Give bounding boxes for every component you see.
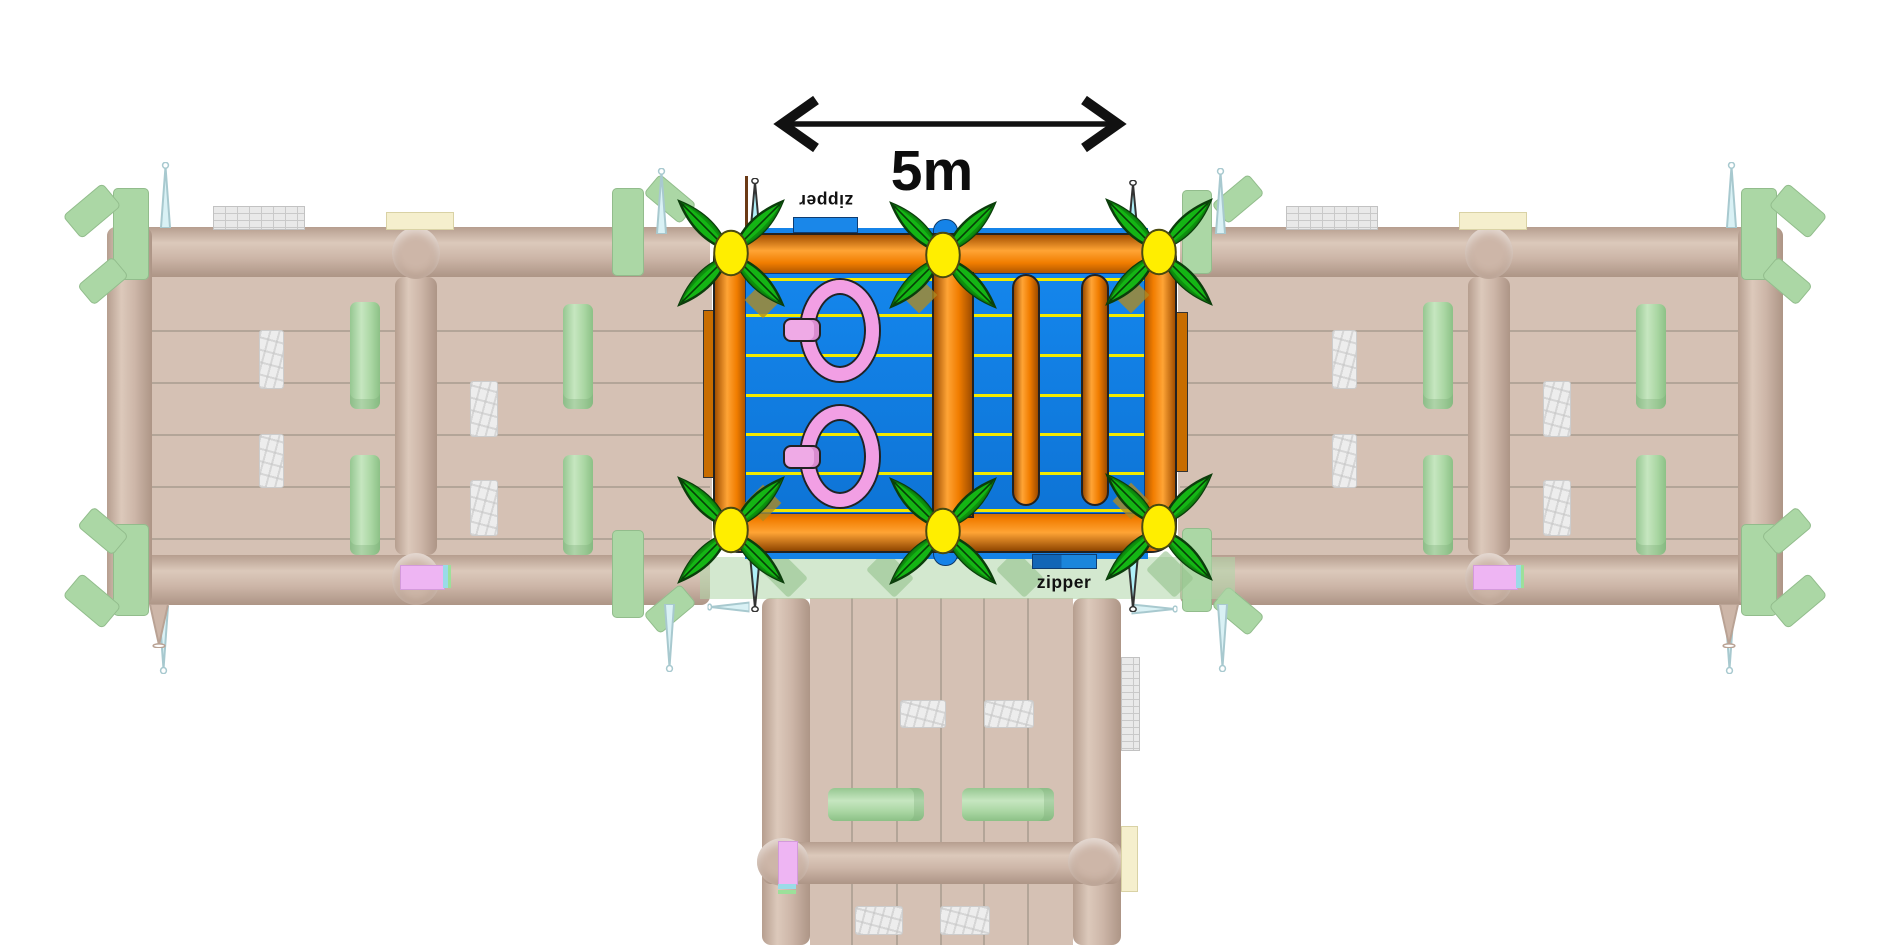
inflatable-plan-canvas: zipper zipper 5m <box>0 0 1890 945</box>
dimension-label: 5m <box>852 142 1012 202</box>
palm-flower-icon <box>868 456 1018 606</box>
zipper-label-bottom: zipper <box>1022 571 1106 593</box>
palm-flower-icon <box>1084 452 1234 602</box>
palm-flower-icon <box>1084 177 1234 327</box>
palm-flower-decoration <box>656 455 806 605</box>
palm-flower-decoration <box>1084 452 1234 602</box>
palm-flower-decoration <box>1084 177 1234 327</box>
palm-flower-icon <box>656 455 806 605</box>
zipper-tab-bottom <box>1032 554 1097 569</box>
zipper-tab-top <box>793 217 858 233</box>
palm-flower-decoration <box>868 456 1018 606</box>
